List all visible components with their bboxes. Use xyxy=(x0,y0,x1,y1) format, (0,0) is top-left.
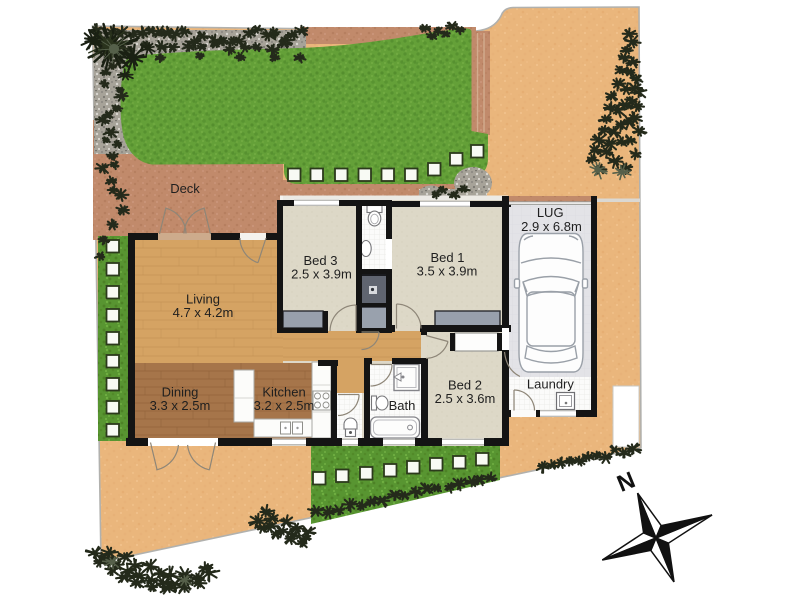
svg-text:3.3 x 2.5m: 3.3 x 2.5m xyxy=(150,398,211,413)
svg-text:2.5 x 3.9m: 2.5 x 3.9m xyxy=(291,267,352,282)
svg-text:2.5 x 3.6m: 2.5 x 3.6m xyxy=(435,391,496,406)
svg-text:N: N xyxy=(613,466,639,497)
svg-text:3.2 x 2.5m: 3.2 x 2.5m xyxy=(254,398,315,413)
svg-text:2.9 x 6.8m: 2.9 x 6.8m xyxy=(521,219,582,234)
svg-text:LUG: LUG xyxy=(537,205,564,220)
svg-text:Deck: Deck xyxy=(170,181,200,196)
svg-text:4.7 x 4.2m: 4.7 x 4.2m xyxy=(173,305,234,320)
svg-text:Laundry: Laundry xyxy=(527,377,574,392)
svg-text:3.5 x 3.9m: 3.5 x 3.9m xyxy=(417,264,478,279)
svg-text:Bath: Bath xyxy=(389,398,416,413)
